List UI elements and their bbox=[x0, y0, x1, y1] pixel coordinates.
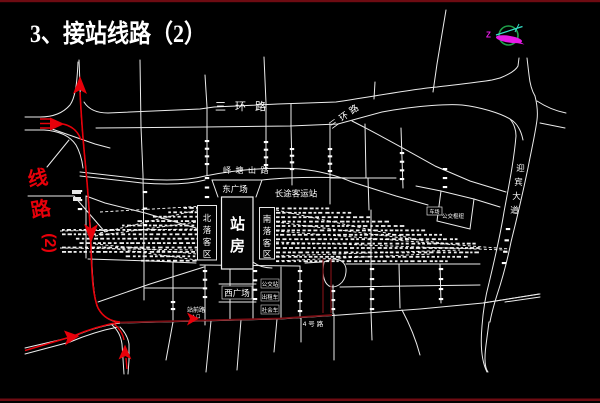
svg-text:南: 南 bbox=[263, 214, 272, 224]
svg-text:三环路: 三环路 bbox=[215, 100, 275, 113]
svg-text:客: 客 bbox=[203, 237, 212, 247]
svg-text:公交枢纽: 公交枢纽 bbox=[442, 212, 465, 220]
svg-text:(2): (2) bbox=[41, 233, 58, 253]
svg-text:道: 道 bbox=[510, 205, 519, 215]
svg-text:站: 站 bbox=[230, 215, 245, 233]
svg-text:公交站: 公交站 bbox=[262, 280, 279, 288]
svg-text:区: 区 bbox=[263, 249, 272, 259]
svg-text:长途客运站: 长途客运站 bbox=[275, 189, 318, 199]
svg-text:出租车: 出租车 bbox=[262, 293, 279, 301]
svg-text:西广场: 西广场 bbox=[224, 288, 250, 298]
svg-text:客: 客 bbox=[263, 238, 272, 248]
svg-text:北: 北 bbox=[203, 213, 212, 223]
svg-text:车场: 车场 bbox=[429, 209, 439, 216]
svg-text:迎: 迎 bbox=[516, 163, 525, 173]
svg-text:4号路: 4号路 bbox=[303, 319, 326, 328]
svg-text:宾: 宾 bbox=[514, 177, 523, 187]
svg-text:3、接站线路（2）: 3、接站线路（2） bbox=[30, 19, 206, 48]
svg-text:线: 线 bbox=[26, 165, 50, 192]
svg-text:区: 区 bbox=[203, 249, 212, 259]
svg-text:落: 落 bbox=[203, 225, 212, 235]
svg-text:东广场: 东广场 bbox=[222, 184, 248, 194]
svg-text:大: 大 bbox=[512, 191, 521, 201]
svg-text:峄塘山路: 峄塘山路 bbox=[223, 165, 273, 175]
svg-text:社会车: 社会车 bbox=[262, 306, 279, 314]
svg-text:落: 落 bbox=[263, 226, 272, 236]
svg-text:房: 房 bbox=[230, 237, 245, 255]
svg-text:Z: Z bbox=[486, 31, 491, 40]
svg-text:站前路: 站前路 bbox=[187, 306, 205, 314]
